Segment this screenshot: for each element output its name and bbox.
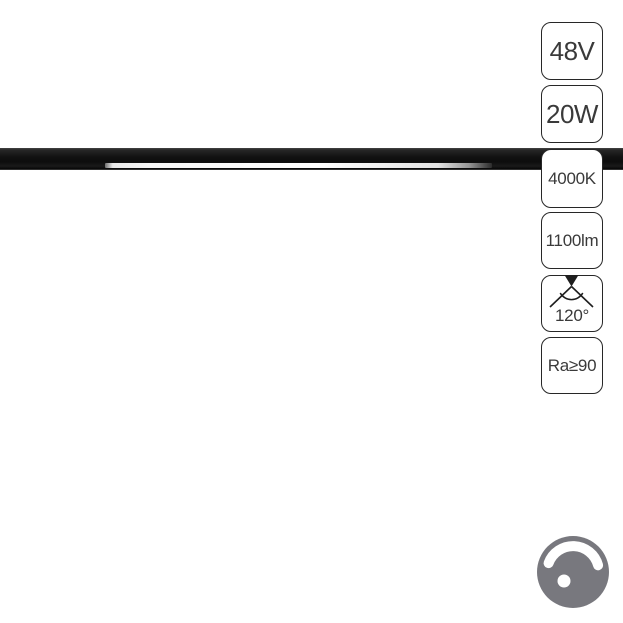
spec-badge-beam-angle: 120° [541,275,603,332]
dimmer-knob-icon [536,535,610,609]
cri-label: Ra≥90 [548,356,596,376]
product-image: 48V 20W 4000K 1100lm 120° Ra≥90 [0,0,623,623]
spec-badge-power: 20W [541,85,603,143]
led-diffuser-strip [105,163,492,168]
power-label: 20W [546,99,598,130]
track-light-bar [0,148,623,170]
luminous-flux-label: 1100lm [546,231,599,251]
beam-angle-icon [542,275,601,311]
voltage-label: 48V [550,36,595,67]
spec-badge-cri: Ra≥90 [541,337,603,394]
spec-badge-luminous-flux: 1100lm [541,212,603,269]
track-bar-edge [0,169,623,170]
spec-badge-color-temperature: 4000K [541,149,603,208]
spec-badge-voltage: 48V [541,22,603,80]
color-temperature-label: 4000K [548,169,596,189]
